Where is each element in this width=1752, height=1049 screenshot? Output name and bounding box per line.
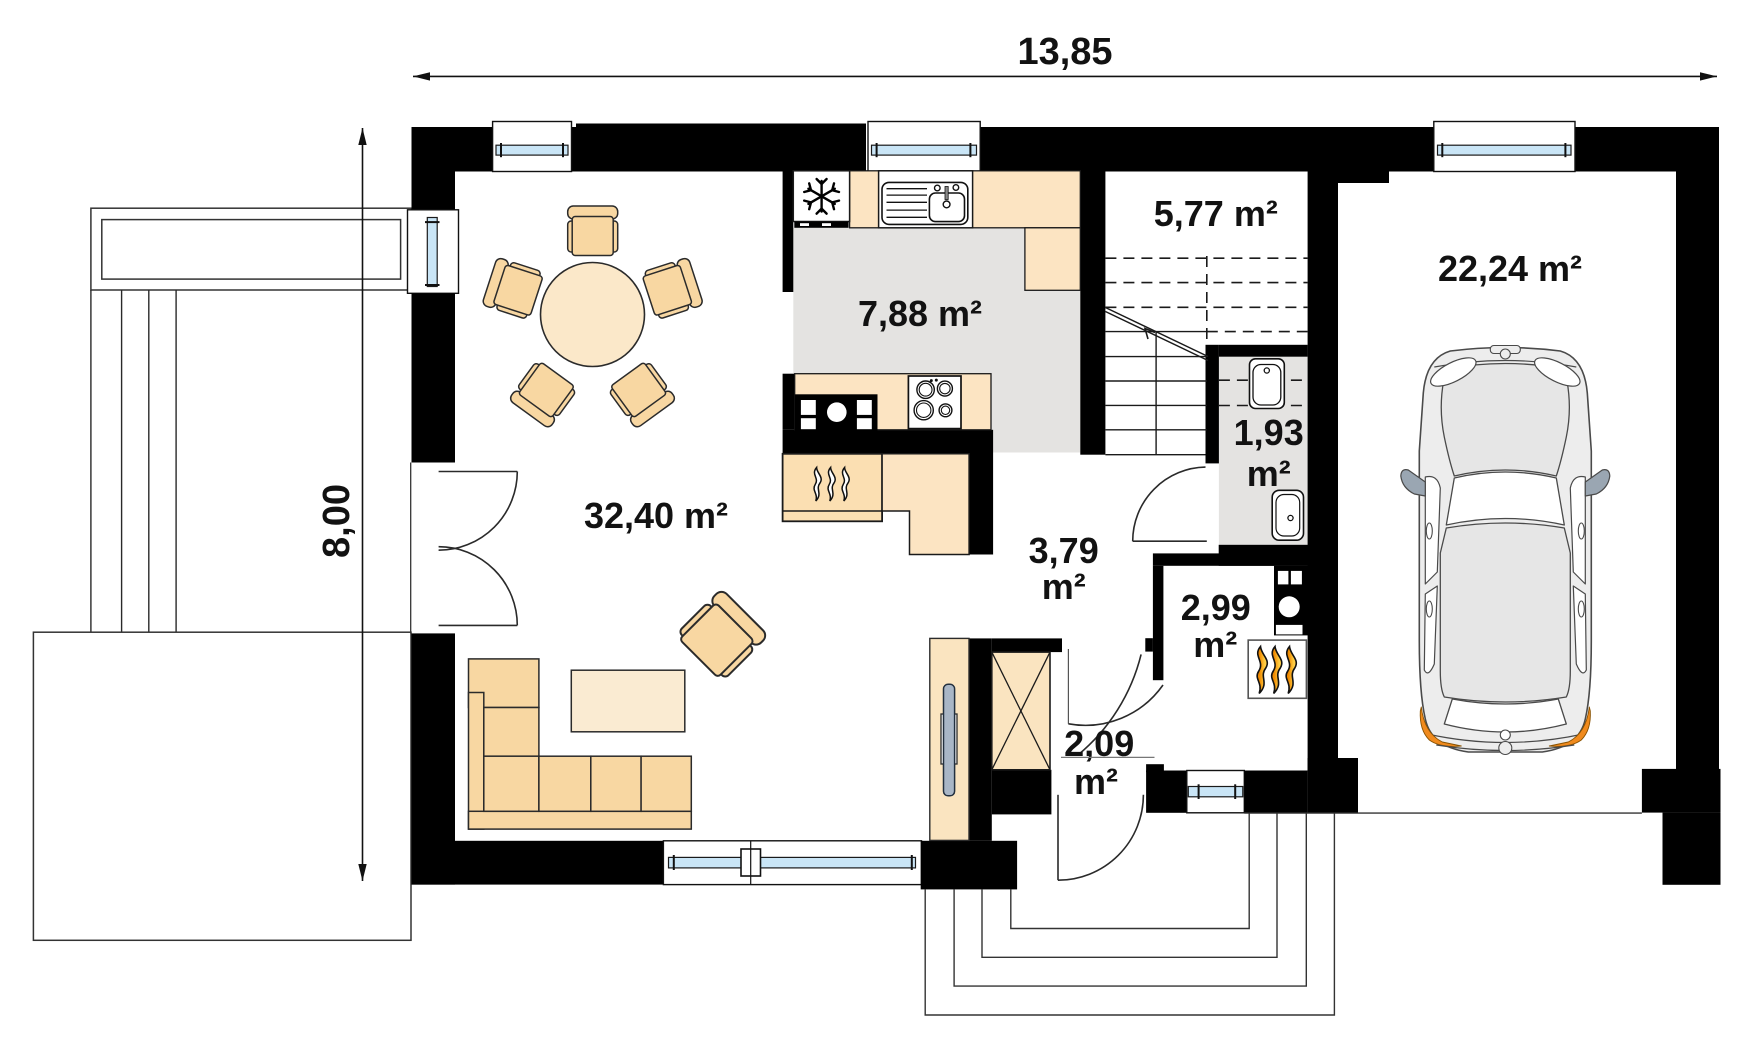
svg-text:5,77 m²: 5,77 m²: [1154, 193, 1278, 234]
svg-text:m²: m²: [1042, 566, 1086, 607]
svg-text:3,79: 3,79: [1029, 530, 1099, 571]
svg-text:1,93: 1,93: [1234, 412, 1304, 453]
svg-text:m²: m²: [1247, 453, 1291, 494]
svg-text:22,24 m²: 22,24 m²: [1438, 248, 1582, 289]
svg-text:7,88 m²: 7,88 m²: [858, 293, 982, 334]
svg-text:32,40 m²: 32,40 m²: [584, 495, 728, 536]
svg-text:m²: m²: [1193, 624, 1237, 665]
svg-text:2,99: 2,99: [1181, 587, 1251, 628]
svg-text:13,85: 13,85: [1017, 31, 1112, 73]
svg-text:8,00: 8,00: [316, 484, 358, 558]
svg-text:m²: m²: [1074, 761, 1118, 802]
